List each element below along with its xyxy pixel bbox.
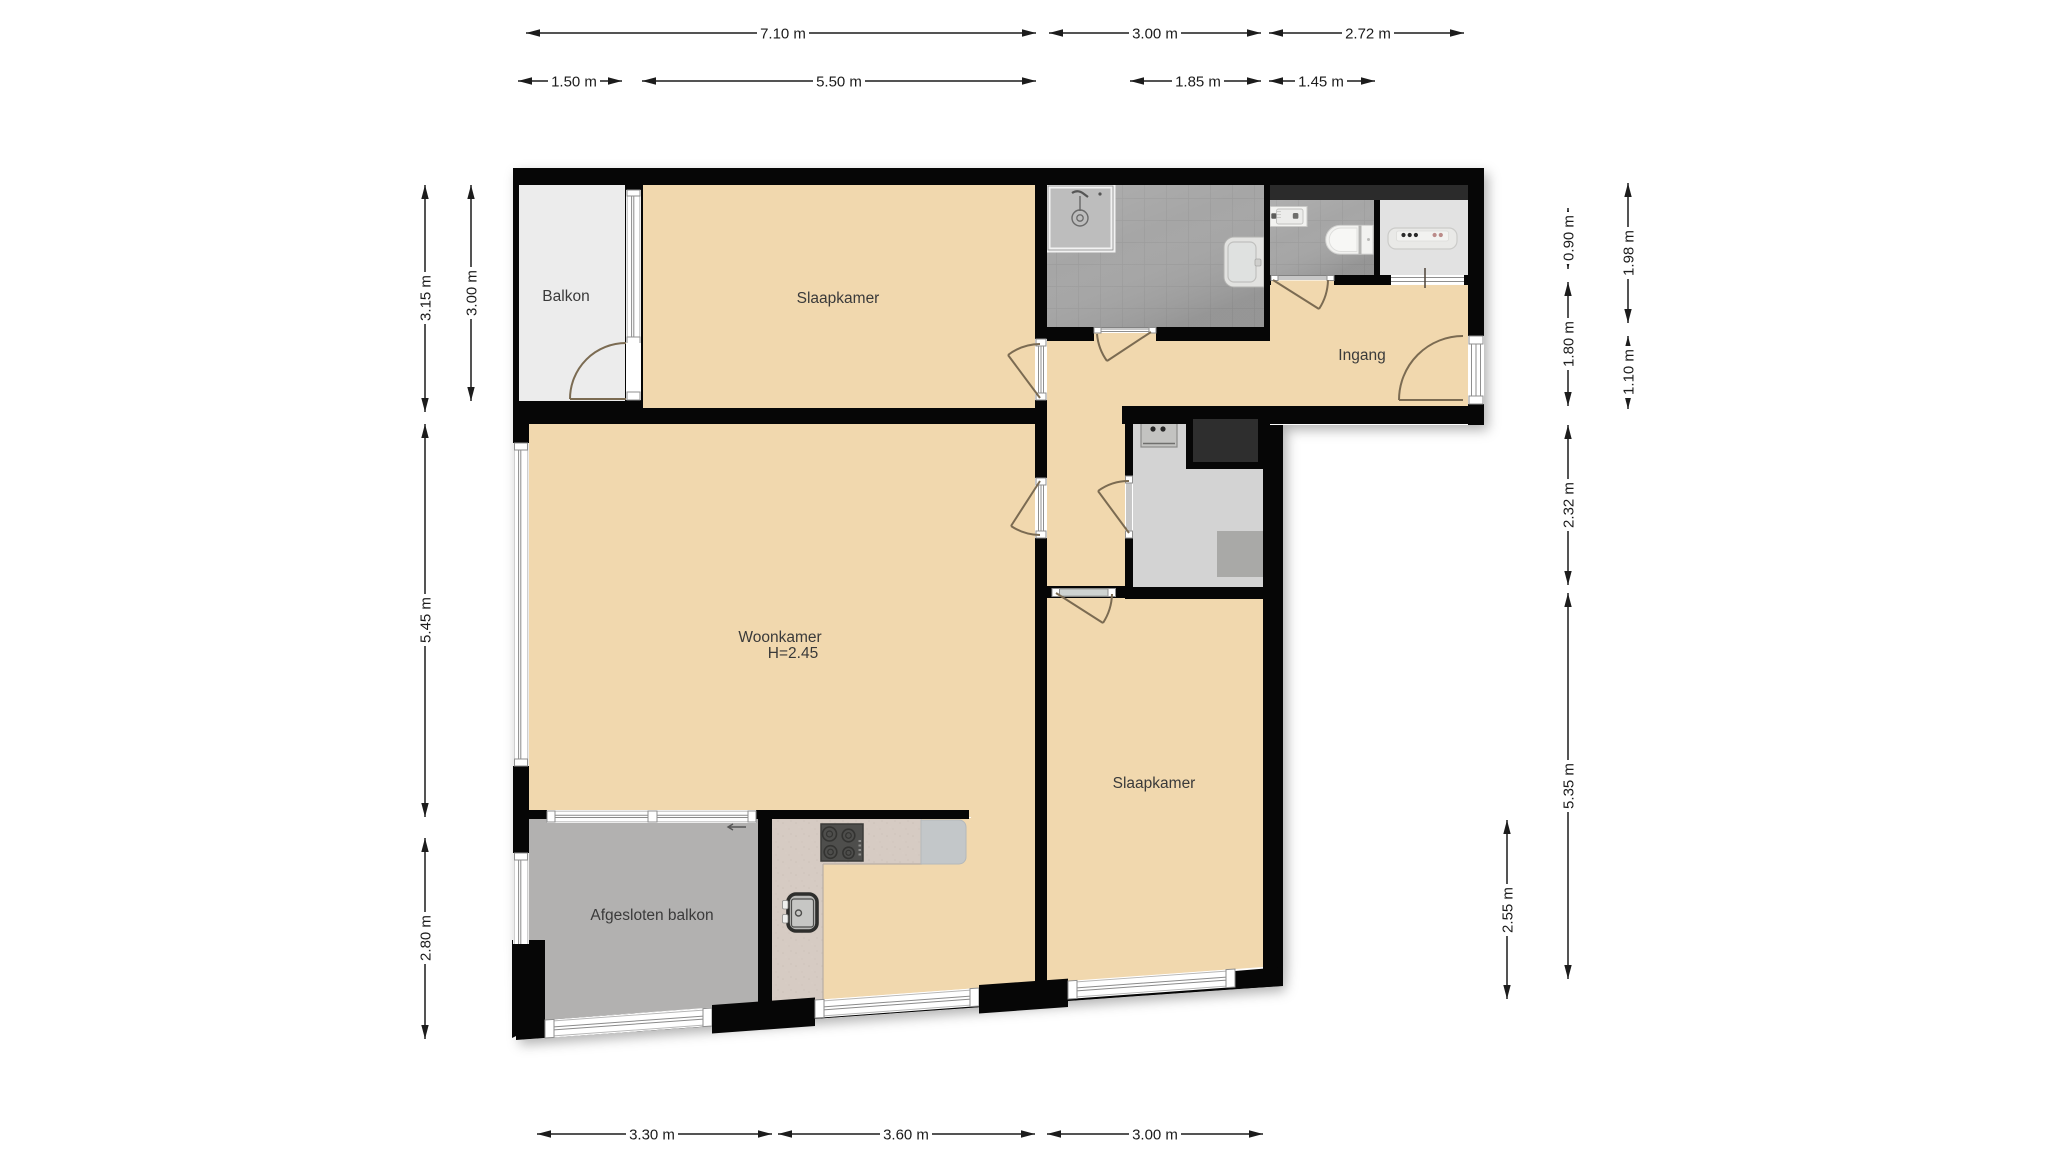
svg-text:3.00 m: 3.00 m bbox=[1132, 26, 1178, 43]
svg-text:1.45 m: 1.45 m bbox=[1298, 74, 1344, 91]
svg-text:5.45 m: 5.45 m bbox=[418, 597, 435, 643]
svg-text:3.00 m: 3.00 m bbox=[1132, 1127, 1178, 1144]
svg-text:2.72 m: 2.72 m bbox=[1345, 26, 1391, 43]
svg-text:1.80 m: 1.80 m bbox=[1561, 321, 1578, 367]
svg-text:3.15 m: 3.15 m bbox=[418, 275, 435, 321]
svg-text:1.50 m: 1.50 m bbox=[551, 74, 597, 91]
svg-text:3.30 m: 3.30 m bbox=[629, 1127, 675, 1144]
svg-text:Woonkamer: Woonkamer bbox=[738, 629, 821, 646]
svg-text:1.10 m: 1.10 m bbox=[1621, 349, 1638, 395]
svg-text:Balkon: Balkon bbox=[542, 288, 589, 305]
svg-text:H=2.45: H=2.45 bbox=[768, 645, 818, 662]
svg-text:Ingang: Ingang bbox=[1338, 347, 1385, 364]
svg-text:5.35 m: 5.35 m bbox=[1561, 763, 1578, 809]
svg-text:2.55 m: 2.55 m bbox=[1500, 887, 1517, 933]
svg-text:1.85 m: 1.85 m bbox=[1175, 74, 1221, 91]
svg-text:0.90 m: 0.90 m bbox=[1561, 215, 1578, 261]
svg-text:7.10 m: 7.10 m bbox=[760, 26, 806, 43]
svg-text:3.00 m: 3.00 m bbox=[464, 270, 481, 316]
svg-text:Afgesloten balkon: Afgesloten balkon bbox=[590, 907, 713, 924]
svg-text:1.98 m: 1.98 m bbox=[1621, 230, 1638, 276]
svg-text:2.80 m: 2.80 m bbox=[418, 915, 435, 961]
svg-text:3.60 m: 3.60 m bbox=[883, 1127, 929, 1144]
svg-text:2.32 m: 2.32 m bbox=[1561, 482, 1578, 528]
svg-text:Slaapkamer: Slaapkamer bbox=[797, 290, 880, 307]
svg-text:5.50 m: 5.50 m bbox=[816, 74, 862, 91]
svg-text:Slaapkamer: Slaapkamer bbox=[1113, 775, 1196, 792]
